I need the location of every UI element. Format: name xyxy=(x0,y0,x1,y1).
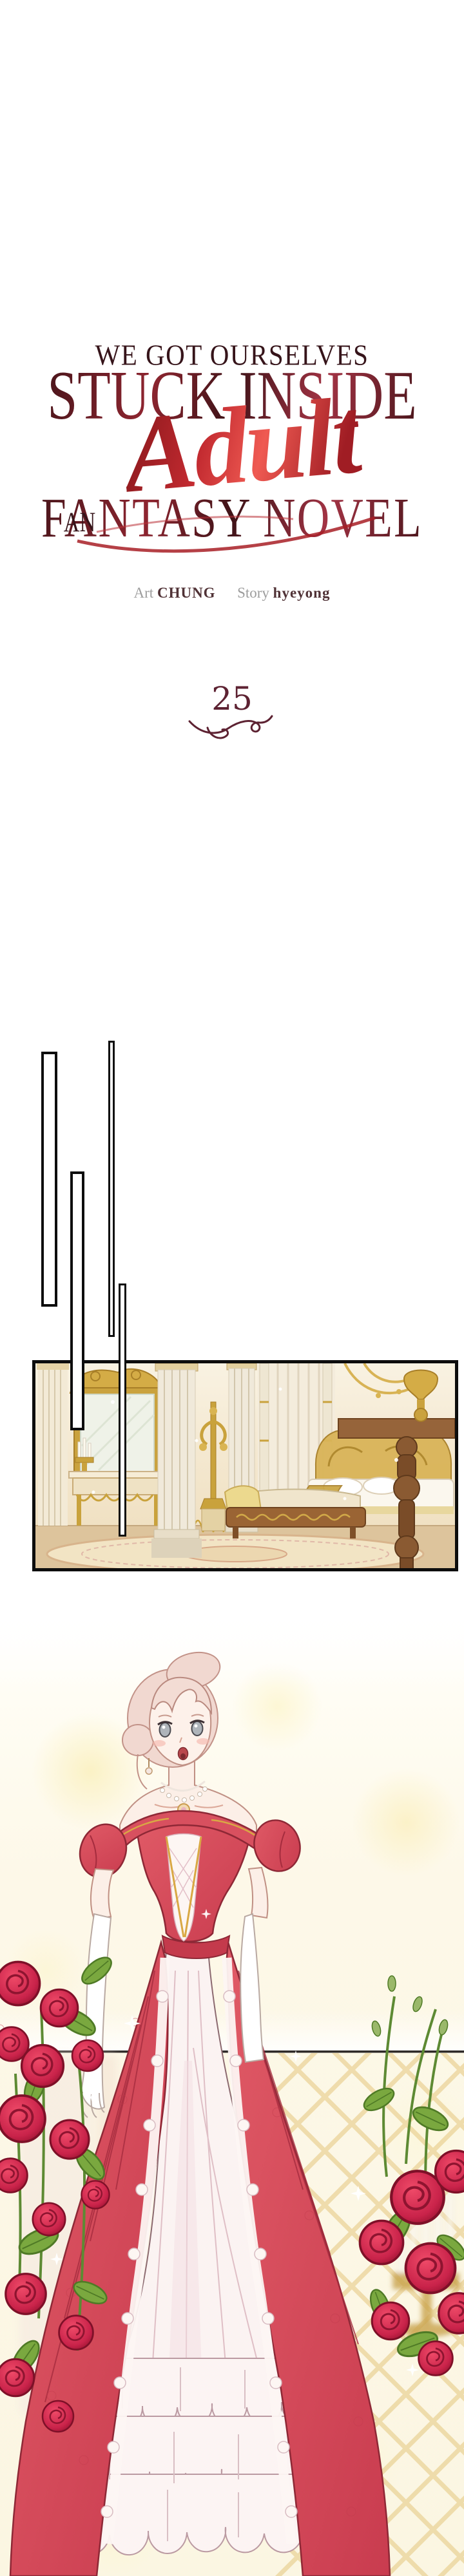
blush-left xyxy=(153,1740,166,1747)
title-article: AN xyxy=(64,506,95,539)
illustration-art xyxy=(0,1610,464,2576)
palace-canopy-slab xyxy=(338,1419,455,1438)
decor-rect-1 xyxy=(41,1052,57,1307)
palace-panel-art xyxy=(35,1363,455,1568)
decor-rect-2 xyxy=(70,1171,84,1430)
glove-right xyxy=(240,1914,264,2062)
credit-story-label: Story xyxy=(237,585,269,601)
credit-art-name: CHUNG xyxy=(157,585,216,601)
credits-row: Art CHUNG Story hyeyong xyxy=(0,585,464,601)
head xyxy=(122,1647,224,1789)
hair-chignon xyxy=(122,1725,153,1756)
heroine-illustration xyxy=(0,1610,464,2576)
decor-rect-3 xyxy=(108,1041,115,1337)
credit-story-name: hyeyong xyxy=(273,585,331,601)
title-script-word: Adult xyxy=(119,375,365,515)
palace-rug xyxy=(47,1535,423,1568)
bodice xyxy=(113,1811,264,1942)
mouth-open xyxy=(179,1748,188,1760)
episode-flourish xyxy=(186,712,278,742)
palace-panel xyxy=(32,1360,458,1571)
palace-room xyxy=(35,1363,455,1568)
webtoon-page: WE GOT OURSELVES STUCK INSIDE AN Adult F… xyxy=(0,0,464,2576)
credit-art-label: Art xyxy=(134,585,154,601)
decor-rect-4 xyxy=(119,1283,126,1537)
palace-left-pilaster xyxy=(37,1363,69,1526)
palace-column-a xyxy=(151,1363,202,1558)
blush-right xyxy=(197,1738,209,1745)
title-script-flourish xyxy=(71,507,393,565)
